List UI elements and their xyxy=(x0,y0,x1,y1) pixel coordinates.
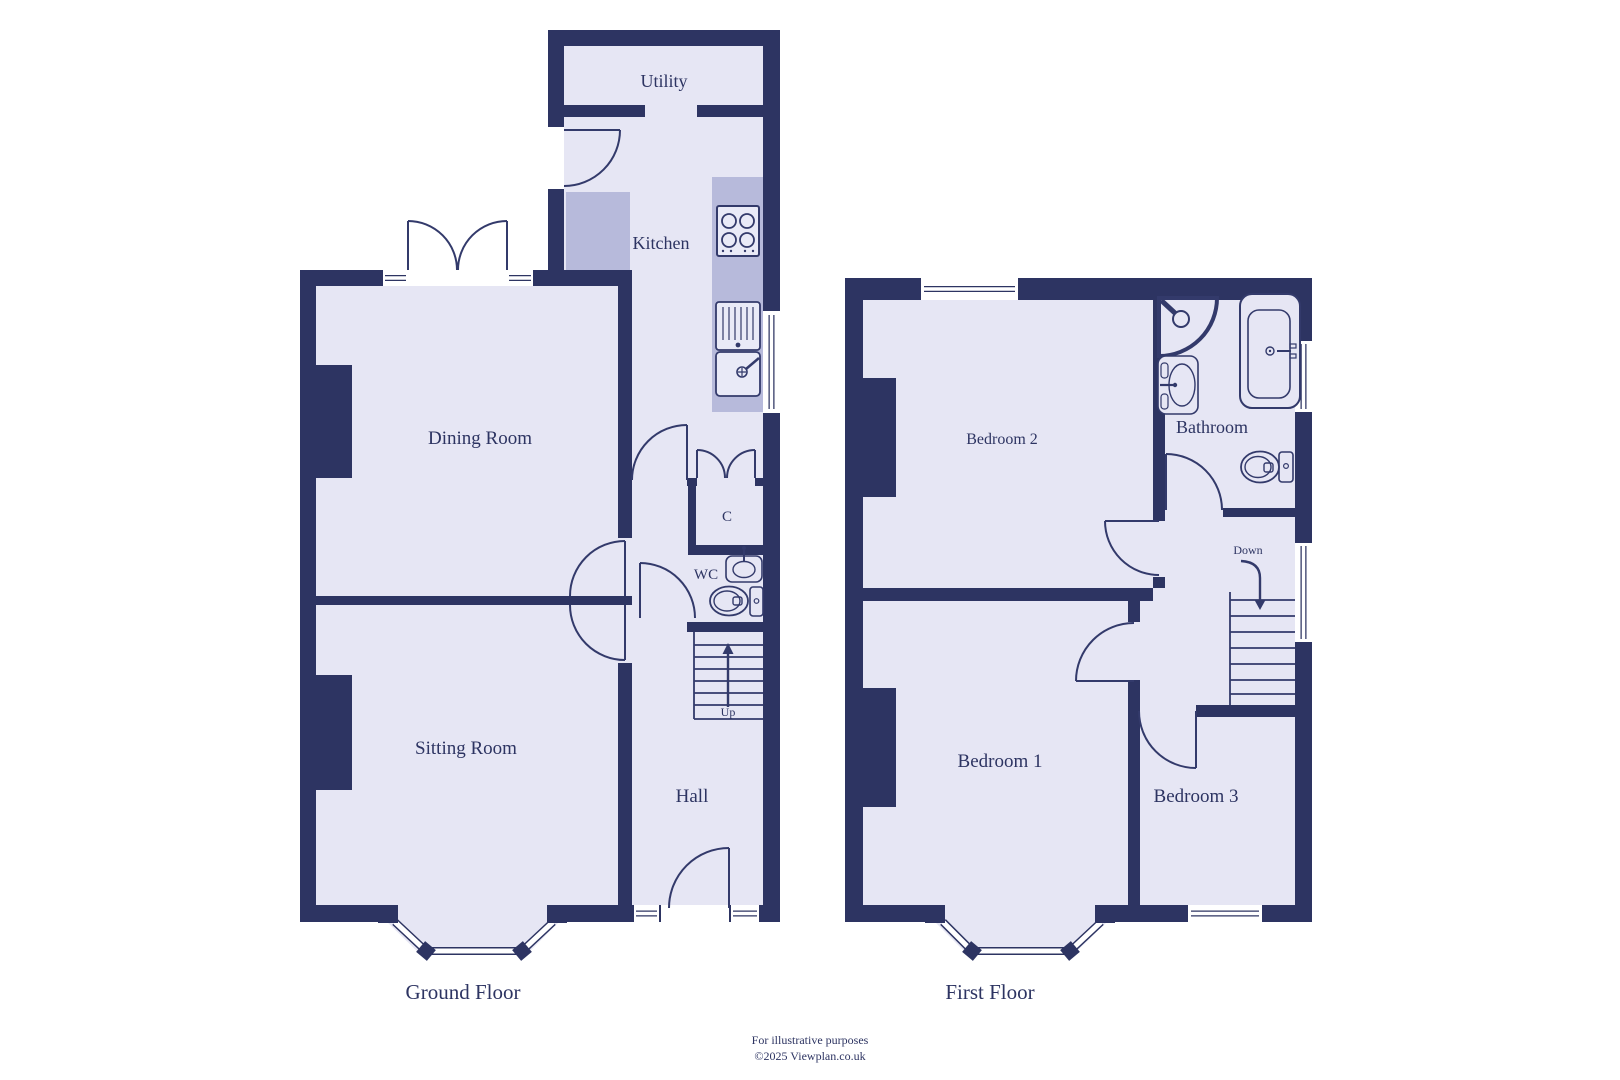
bathroom-label: Bathroom xyxy=(1176,417,1248,437)
sitting-bay-opening xyxy=(385,905,561,922)
bathroom-toilet-icon xyxy=(1241,452,1293,483)
hob-icon xyxy=(717,206,759,256)
bathroom-basin-icon xyxy=(1158,356,1198,414)
first-floor-plan: Bedroom 2 Bathroom Bedroom 1 Bedroom 3 D… xyxy=(845,278,1312,1004)
ground-floor-title: Ground Floor xyxy=(406,980,521,1004)
bedroom2-label: Bedroom 2 xyxy=(966,431,1038,448)
chimney-breast-sitting xyxy=(316,675,352,790)
chimney-breast-bedroom1 xyxy=(863,688,896,807)
bedroom3-label: Bedroom 3 xyxy=(1154,786,1239,807)
sitting-room-label: Sitting Room xyxy=(415,738,517,759)
wc-label: WC xyxy=(694,567,718,583)
footer-disclaimer: For illustrative purposes xyxy=(752,1033,869,1047)
floorplan-page: Utility Kitchen Dining Room Sitting Room… xyxy=(0,0,1620,1080)
kitchen-label: Kitchen xyxy=(633,233,690,253)
floorplan-canvas: Utility Kitchen Dining Room Sitting Room… xyxy=(0,0,1620,1080)
hall-label: Hall xyxy=(676,786,709,807)
ground-floor-plan: Utility Kitchen Dining Room Sitting Room… xyxy=(300,30,780,1004)
first-floor-title: First Floor xyxy=(945,980,1034,1004)
bedroom1-label: Bedroom 1 xyxy=(958,751,1043,772)
down-label: Down xyxy=(1233,543,1262,557)
up-label: Up xyxy=(721,705,736,719)
cupboard-label: C xyxy=(722,509,732,525)
dining-french-door-left xyxy=(408,221,457,270)
dining-french-door-right xyxy=(458,221,507,270)
kitchen-sink-icon xyxy=(716,302,760,396)
chimney-breast-dining xyxy=(316,365,352,478)
bath-icon xyxy=(1240,294,1300,408)
kitchen-back-door-opening xyxy=(548,127,564,189)
utility-label: Utility xyxy=(640,71,687,91)
chimney-breast-bedroom2 xyxy=(863,378,896,497)
dining-french-door-opening xyxy=(408,270,507,286)
front-door-opening xyxy=(661,905,729,922)
bedroom1-bay-opening xyxy=(933,905,1109,922)
kitchen-counter-left xyxy=(566,192,630,272)
footer-copyright: ©2025 Viewplan.co.uk xyxy=(754,1049,865,1063)
wc-toilet-icon xyxy=(710,587,763,617)
footer: For illustrative purposes ©2025 Viewplan… xyxy=(752,1033,869,1063)
dining-room-label: Dining Room xyxy=(428,428,532,449)
